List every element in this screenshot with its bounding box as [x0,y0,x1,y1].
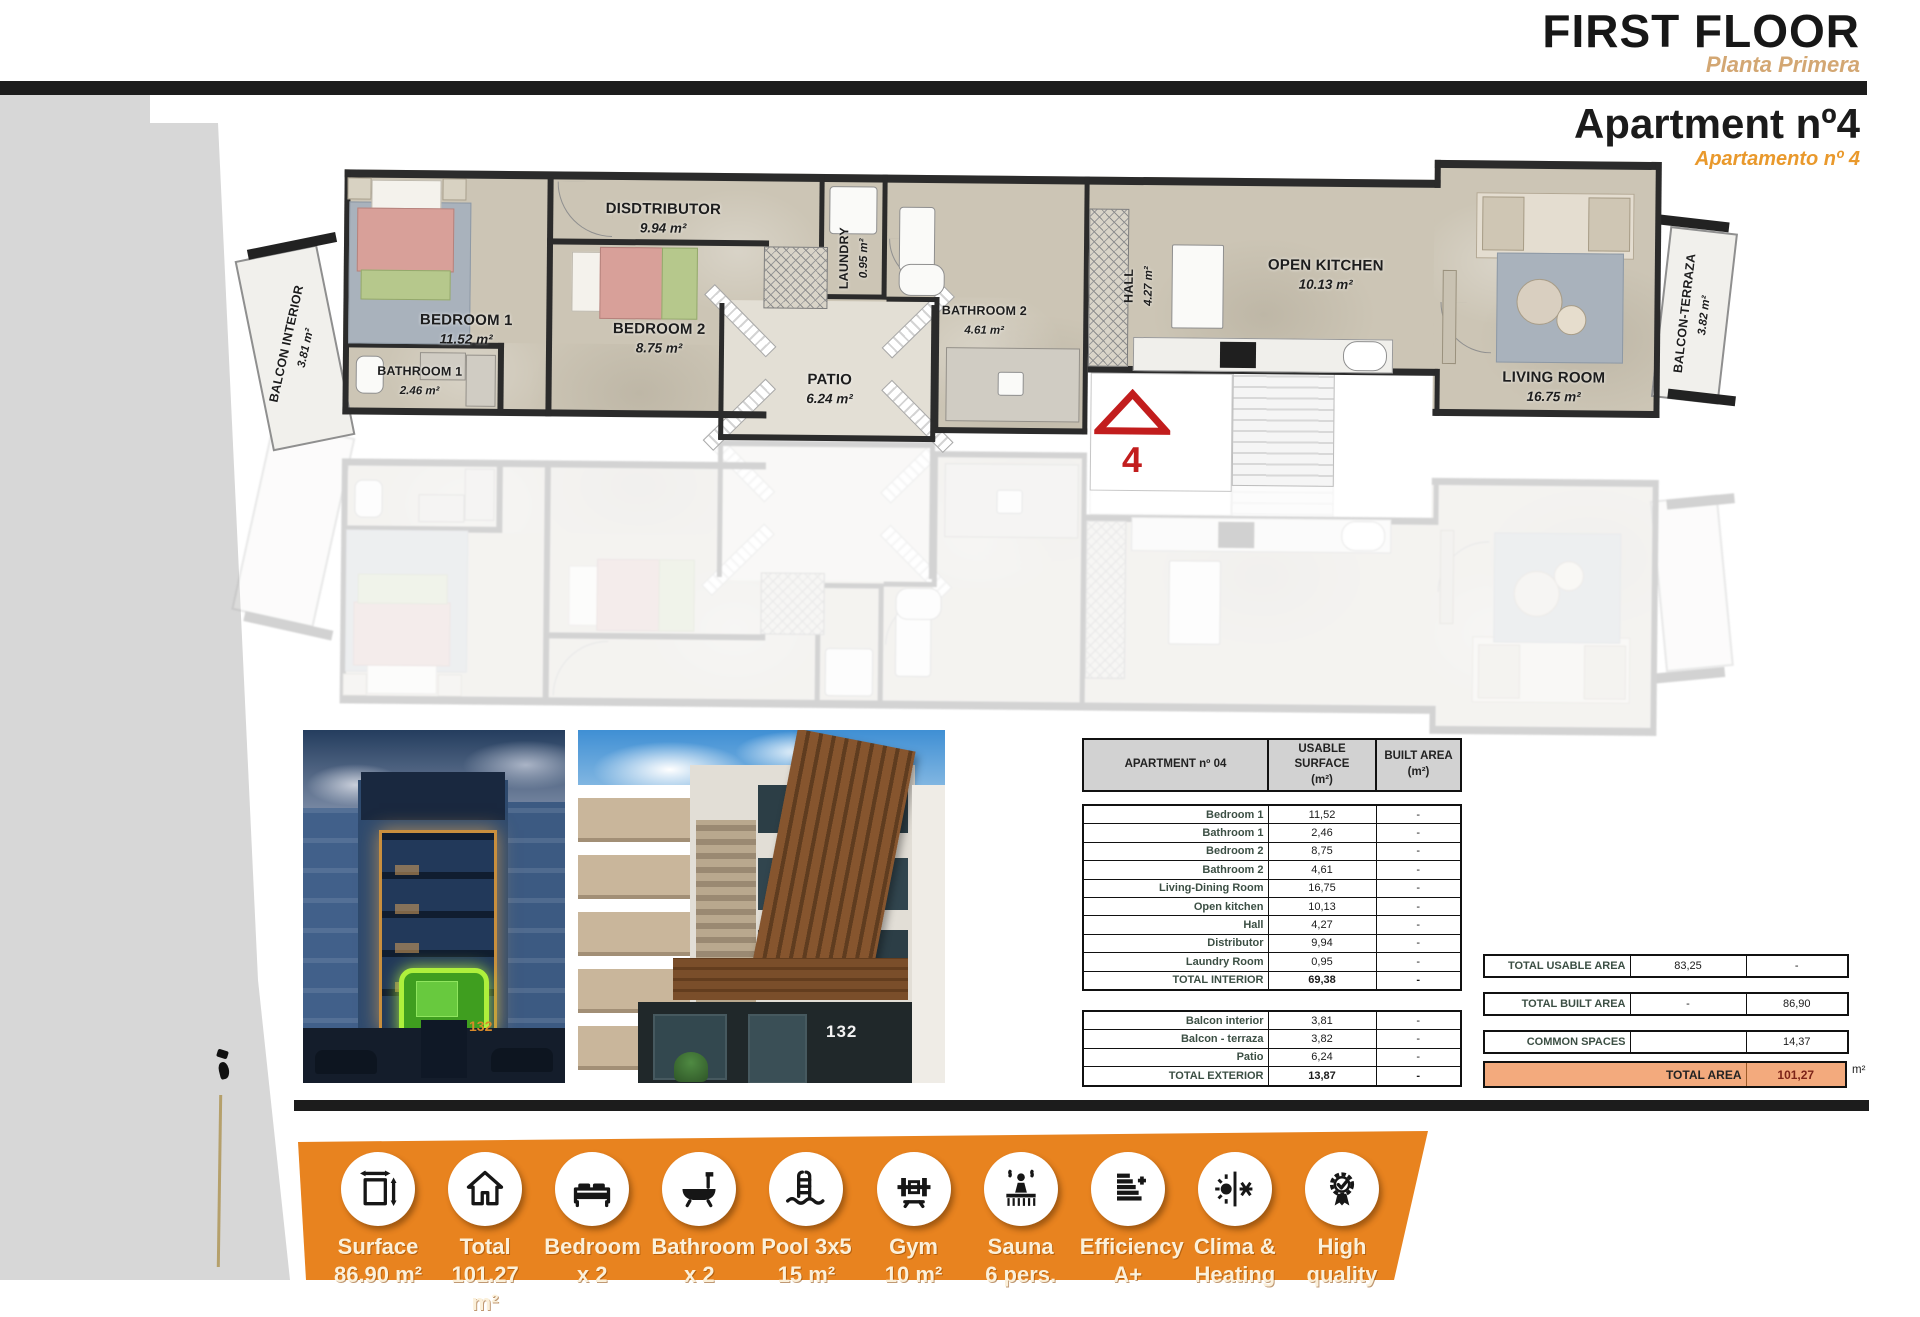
entrance-door [421,1020,467,1078]
house-number: 132 [826,1022,857,1042]
parked-car [491,1048,553,1072]
table-row: Distributor9,94- [1083,934,1461,952]
wall [1434,369,1439,416]
feature-high: Highquality [1294,1152,1390,1317]
col-header-apartment: APARTMENT nº 04 [1083,739,1268,791]
table-row: Bedroom 28,75- [1083,842,1461,860]
room-label-patio: PATIO 6.24 m² [806,371,853,409]
wall [497,343,504,413]
room-label-open-kitchen: OPEN KITCHEN 10.13 m² [1268,256,1384,295]
bed-pillows [571,252,602,312]
wall [1432,409,1659,418]
table-row: Balcon interior3,81- [1083,1011,1461,1030]
summary-common-spaces: COMMON SPACES 14,37 [1483,1030,1849,1054]
highlighted-unit-window [416,981,458,1017]
bathroom-cabinet [899,207,936,271]
house-number: 132 [469,1018,492,1034]
bed-pillows [371,180,441,211]
side-table [1556,305,1586,335]
bottom-divider-bar [294,1100,1869,1111]
area-table-interior: Bedroom 111,52-Bathroom 12,46-Bedroom 28… [1082,804,1462,991]
shower-drain [998,372,1024,396]
pool-icon [784,1167,828,1211]
feature-label: Total101.27 m² [437,1233,533,1317]
col-header-usable: USABLE SURFACE (m²) [1268,739,1376,791]
bathroom-icon [677,1167,721,1211]
plant [674,1052,708,1082]
feature-total: Total101.27 m² [437,1152,533,1317]
table-row: Bathroom 24,61- [1083,861,1461,879]
summary-usable-area: TOTAL USABLE AREA 83,25 - [1483,954,1849,978]
table-row: TOTAL EXTERIOR13,87- [1083,1067,1461,1086]
day-facade-photo: 132 [578,730,945,1083]
room-label-bathroom2: BATHROOM 2 4.61 m² [942,301,1027,340]
table-row: Bathroom 12,46- [1083,824,1461,842]
feature-label: Highquality [1294,1233,1390,1289]
wall [886,297,939,303]
unit-marker: 4 [1094,389,1171,479]
wall [933,427,1087,434]
bed-foot-blanket [360,270,450,301]
table-row: Bedroom 111,52- [1083,805,1461,824]
area-table-exterior-body: Balcon interior3,81-Balcon - terraza3,82… [1083,1011,1461,1086]
unit-marker-triangle-icon [1094,389,1170,436]
feature-pool-3x5: Pool 3x515 m² [758,1152,854,1317]
room-label-living-room: LIVING ROOM 16.75 m² [1502,369,1605,408]
feature-label: Gym10 m² [866,1233,962,1289]
feature-surface: Surface86.90 m² [330,1152,426,1317]
parked-car [315,1050,377,1074]
bed-blanket [599,247,664,320]
summary-total-area: TOTAL AREA 101,27 [1483,1061,1847,1088]
unit-number: 4 [1094,442,1170,479]
feature-label: Clima &Heating [1187,1233,1283,1289]
feature-sauna: Sauna6 pers. [973,1152,1069,1317]
page-title: FIRST FLOOR [1542,4,1860,58]
room-label-distributor: DISDTRIBUTOR 9.94 m² [605,200,721,239]
roof-structure [361,772,505,820]
wardrobe [763,246,828,309]
table-row: TOTAL INTERIOR69,38- [1083,971,1461,990]
feature-label: Bathroomx 2 [651,1233,747,1289]
feature-bathroom: Bathroomx 2 [651,1152,747,1317]
toilet [899,264,945,296]
top-divider-bar [0,81,1867,95]
table-row: Balcon - terraza3,82- [1083,1030,1461,1048]
feature-label: Bedroomx 2 [544,1233,640,1289]
quality-icon [1320,1167,1364,1211]
shower [465,355,495,407]
efficiency-icon [1106,1167,1150,1211]
table-row: Living-Dining Room16,75- [1083,879,1461,897]
table-row: Patio6,24- [1083,1048,1461,1066]
feature-label: EfficiencyA+ [1080,1233,1176,1289]
sauna-icon [999,1167,1043,1211]
room-label-bathroom1: BATHROOM 1 2.46 m² [377,362,462,401]
bedroom-icon [570,1167,614,1211]
clima-icon [1213,1167,1257,1211]
feature-clima-: Clima &Heating [1187,1152,1283,1317]
col-header-built: BUILT AREA (m²) [1376,739,1461,791]
bed-foot-blanket [661,247,698,319]
feature-bedroom: Bedroomx 2 [544,1152,640,1317]
summary-built-area: TOTAL BUILT AREA - 86,90 [1483,992,1849,1016]
table-row: Open kitchen10,13- [1083,897,1461,915]
feature-label: Surface86.90 m² [330,1233,426,1289]
neighbor-building [912,785,945,1083]
table-row: Laundry Room0,95- [1083,953,1461,971]
feature-gym: Gym10 m² [866,1152,962,1317]
floorplan-drawing: BEDROOM 1 11.52 m² BATHROOM 1 2.46 m² DI… [194,140,1740,745]
room-label-hall: HALL 4.27 m² [1120,266,1158,306]
bed-blanket [357,208,455,273]
nightstand [442,178,466,200]
wall [718,434,935,442]
gym-icon [892,1167,936,1211]
sofa-cushion [1482,196,1525,250]
total-icon [463,1167,507,1211]
tv-sideboard [1442,270,1457,364]
stairs [1232,368,1335,487]
kitchen-sink [1343,341,1387,371]
wood-canopy [673,958,908,1000]
total-area-unit: m² [1852,1064,1865,1076]
page-subtitle: Planta Primera [1706,52,1860,78]
nightstand [347,177,371,199]
surface-icon [356,1167,400,1211]
area-table-interior-body: Bedroom 111,52-Bathroom 12,46-Bedroom 28… [1083,805,1461,990]
apartment-title: Apartment nº4 [1574,100,1860,148]
night-facade-photo: 132 [303,730,565,1083]
storefront-door [748,1014,807,1083]
features-row: Surface86.90 m²Total101.27 m²Bedroomx 2B… [330,1152,1390,1317]
wall [819,294,887,300]
feature-efficiency: EfficiencyA+ [1080,1152,1176,1317]
floorplan: BEDROOM 1 11.52 m² BATHROOM 1 2.46 m² DI… [194,140,1740,745]
cooktop [1220,342,1256,368]
feature-label: Sauna6 pers. [973,1233,1069,1289]
wall [1435,160,1441,188]
sofa-cushion [1588,197,1631,251]
table-row: Hall4,27- [1083,916,1461,934]
area-table-header: APARTMENT nº 04 USABLE SURFACE (m²) BUIL… [1082,738,1462,792]
room-label-laundry: LAUNDRY 0.95 m² [835,227,873,289]
kitchen-peninsula [1171,244,1224,328]
feature-label: Pool 3x515 m² [758,1233,854,1289]
room-label-bedroom1: BEDROOM 1 11.52 m² [420,311,513,350]
room-label-bedroom2: BEDROOM 2 8.75 m² [613,320,706,359]
area-table-exterior: Balcon interior3,81-Balcon - terraza3,82… [1082,1010,1462,1087]
